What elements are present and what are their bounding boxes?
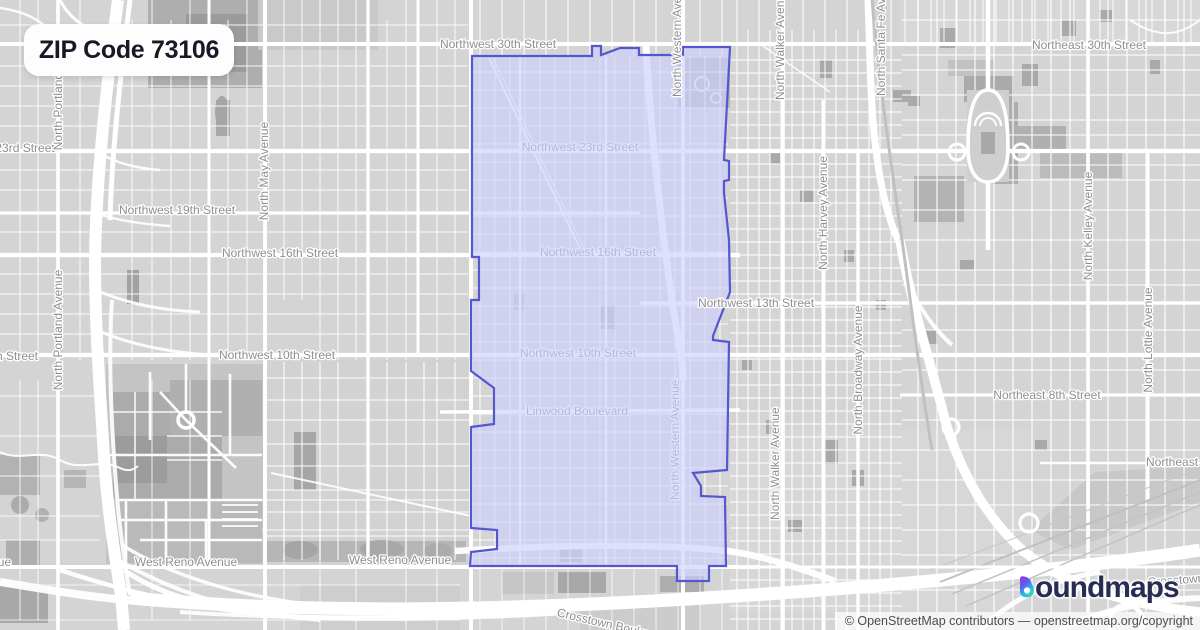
svg-text:North Harvey Avenue: North Harvey Avenue bbox=[816, 156, 830, 270]
svg-text:Northwest 13th Street: Northwest 13th Street bbox=[698, 296, 815, 310]
svg-text:North Portland Avenue: North Portland Avenue bbox=[51, 269, 65, 390]
svg-text:Northwest 23rd Street: Northwest 23rd Street bbox=[0, 141, 55, 155]
svg-text:North Broadway Avenue: North Broadway Avenue bbox=[851, 305, 865, 435]
svg-text:Northwest 30th Street: Northwest 30th Street bbox=[440, 37, 557, 51]
svg-text:Northwest 10th Street: Northwest 10th Street bbox=[219, 348, 336, 362]
svg-text:West Reno Avenue: West Reno Avenue bbox=[135, 555, 238, 569]
svg-text:Northwest 10th Street: Northwest 10th Street bbox=[0, 349, 39, 363]
svg-text:West Reno Avenue: West Reno Avenue bbox=[349, 553, 452, 567]
svg-text:North Walker Avenue: North Walker Avenue bbox=[773, 0, 787, 100]
svg-text:Northwest 16th Street: Northwest 16th Street bbox=[222, 246, 339, 260]
svg-text:North May Avenue: North May Avenue bbox=[257, 121, 271, 220]
svg-text:Northeast 8th Street: Northeast 8th Street bbox=[993, 388, 1101, 402]
svg-text:Northeast 30th Street: Northeast 30th Street bbox=[1032, 38, 1147, 52]
svg-text:Northwest 19th Street: Northwest 19th Street bbox=[119, 203, 236, 217]
svg-text:North Lottie Avenue: North Lottie Avenue bbox=[1141, 287, 1155, 393]
svg-text:North Santa Fe Avenue: North Santa Fe Avenue bbox=[874, 0, 888, 96]
svg-text:North Kelley Avenue: North Kelley Avenue bbox=[1081, 171, 1095, 280]
svg-text:North Western Avenue: North Western Avenue bbox=[670, 0, 684, 97]
svg-text:West Reno Avenue: West Reno Avenue bbox=[0, 555, 11, 569]
svg-text:North Walker Avenue: North Walker Avenue bbox=[768, 407, 782, 520]
svg-text:Northeast 2nd Street: Northeast 2nd Street bbox=[1146, 455, 1200, 469]
